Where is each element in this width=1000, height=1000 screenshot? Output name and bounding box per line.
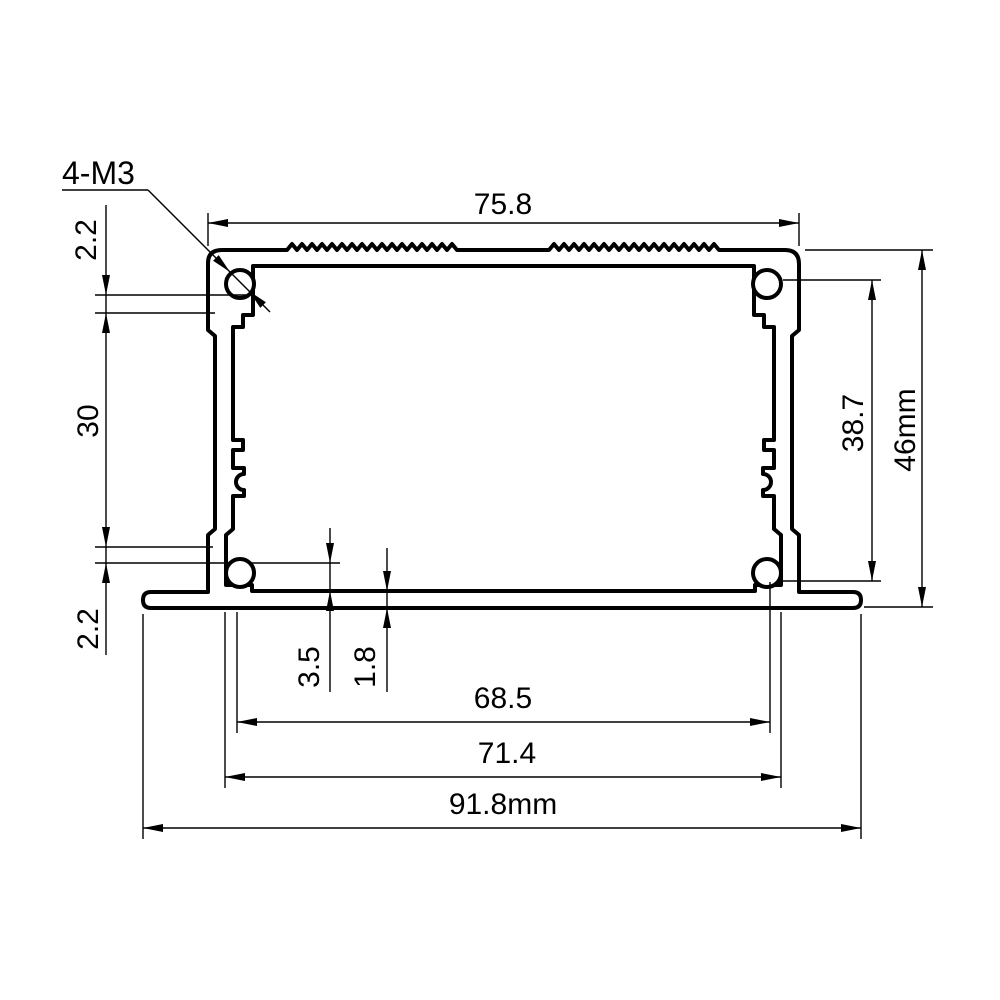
- dim-overall-width-label: 91.8mm: [449, 788, 557, 821]
- profile-cavity-outline: [226, 266, 781, 591]
- screw-boss-bottom-left: [226, 559, 254, 587]
- dim-base-thickness-label: 1.8: [349, 646, 382, 688]
- dim-side-lower-step-label: 2.2: [72, 608, 105, 650]
- screw-boss-bottom-right: [753, 559, 781, 587]
- dim-ledge-height-label: 3.5: [293, 646, 326, 688]
- extrusion-profile: [143, 244, 861, 608]
- profile-drawing-svg: 75.8 2.2 30 2.2 38.7 46mm: [0, 0, 1000, 1000]
- dim-side-mid-label: 30: [72, 404, 105, 437]
- dim-base-thickness: 1.8: [349, 548, 391, 692]
- dim-inner-height-label: 38.7: [837, 394, 870, 452]
- technical-drawing-page: 75.8 2.2 30 2.2 38.7 46mm: [0, 0, 1000, 1000]
- callout-thread-label: 4-M3: [62, 155, 135, 191]
- dim-top-width-label: 75.8: [474, 188, 532, 221]
- dim-left-chain: 2.2 30 2.2: [70, 205, 247, 655]
- screw-boss-top-right: [753, 270, 781, 298]
- dim-overall-width: 91.8mm: [143, 614, 861, 839]
- dim-overall-height-label: 46mm: [889, 388, 922, 471]
- dim-inner-height: 38.7: [782, 280, 881, 581]
- dim-top-width: 75.8: [208, 188, 799, 246]
- dim-inner-width-label: 68.5: [474, 682, 532, 715]
- dim-step-width-label: 71.4: [478, 737, 536, 770]
- screw-boss-top-left: [226, 270, 254, 298]
- dim-corner-offset-label: 2.2: [70, 219, 103, 261]
